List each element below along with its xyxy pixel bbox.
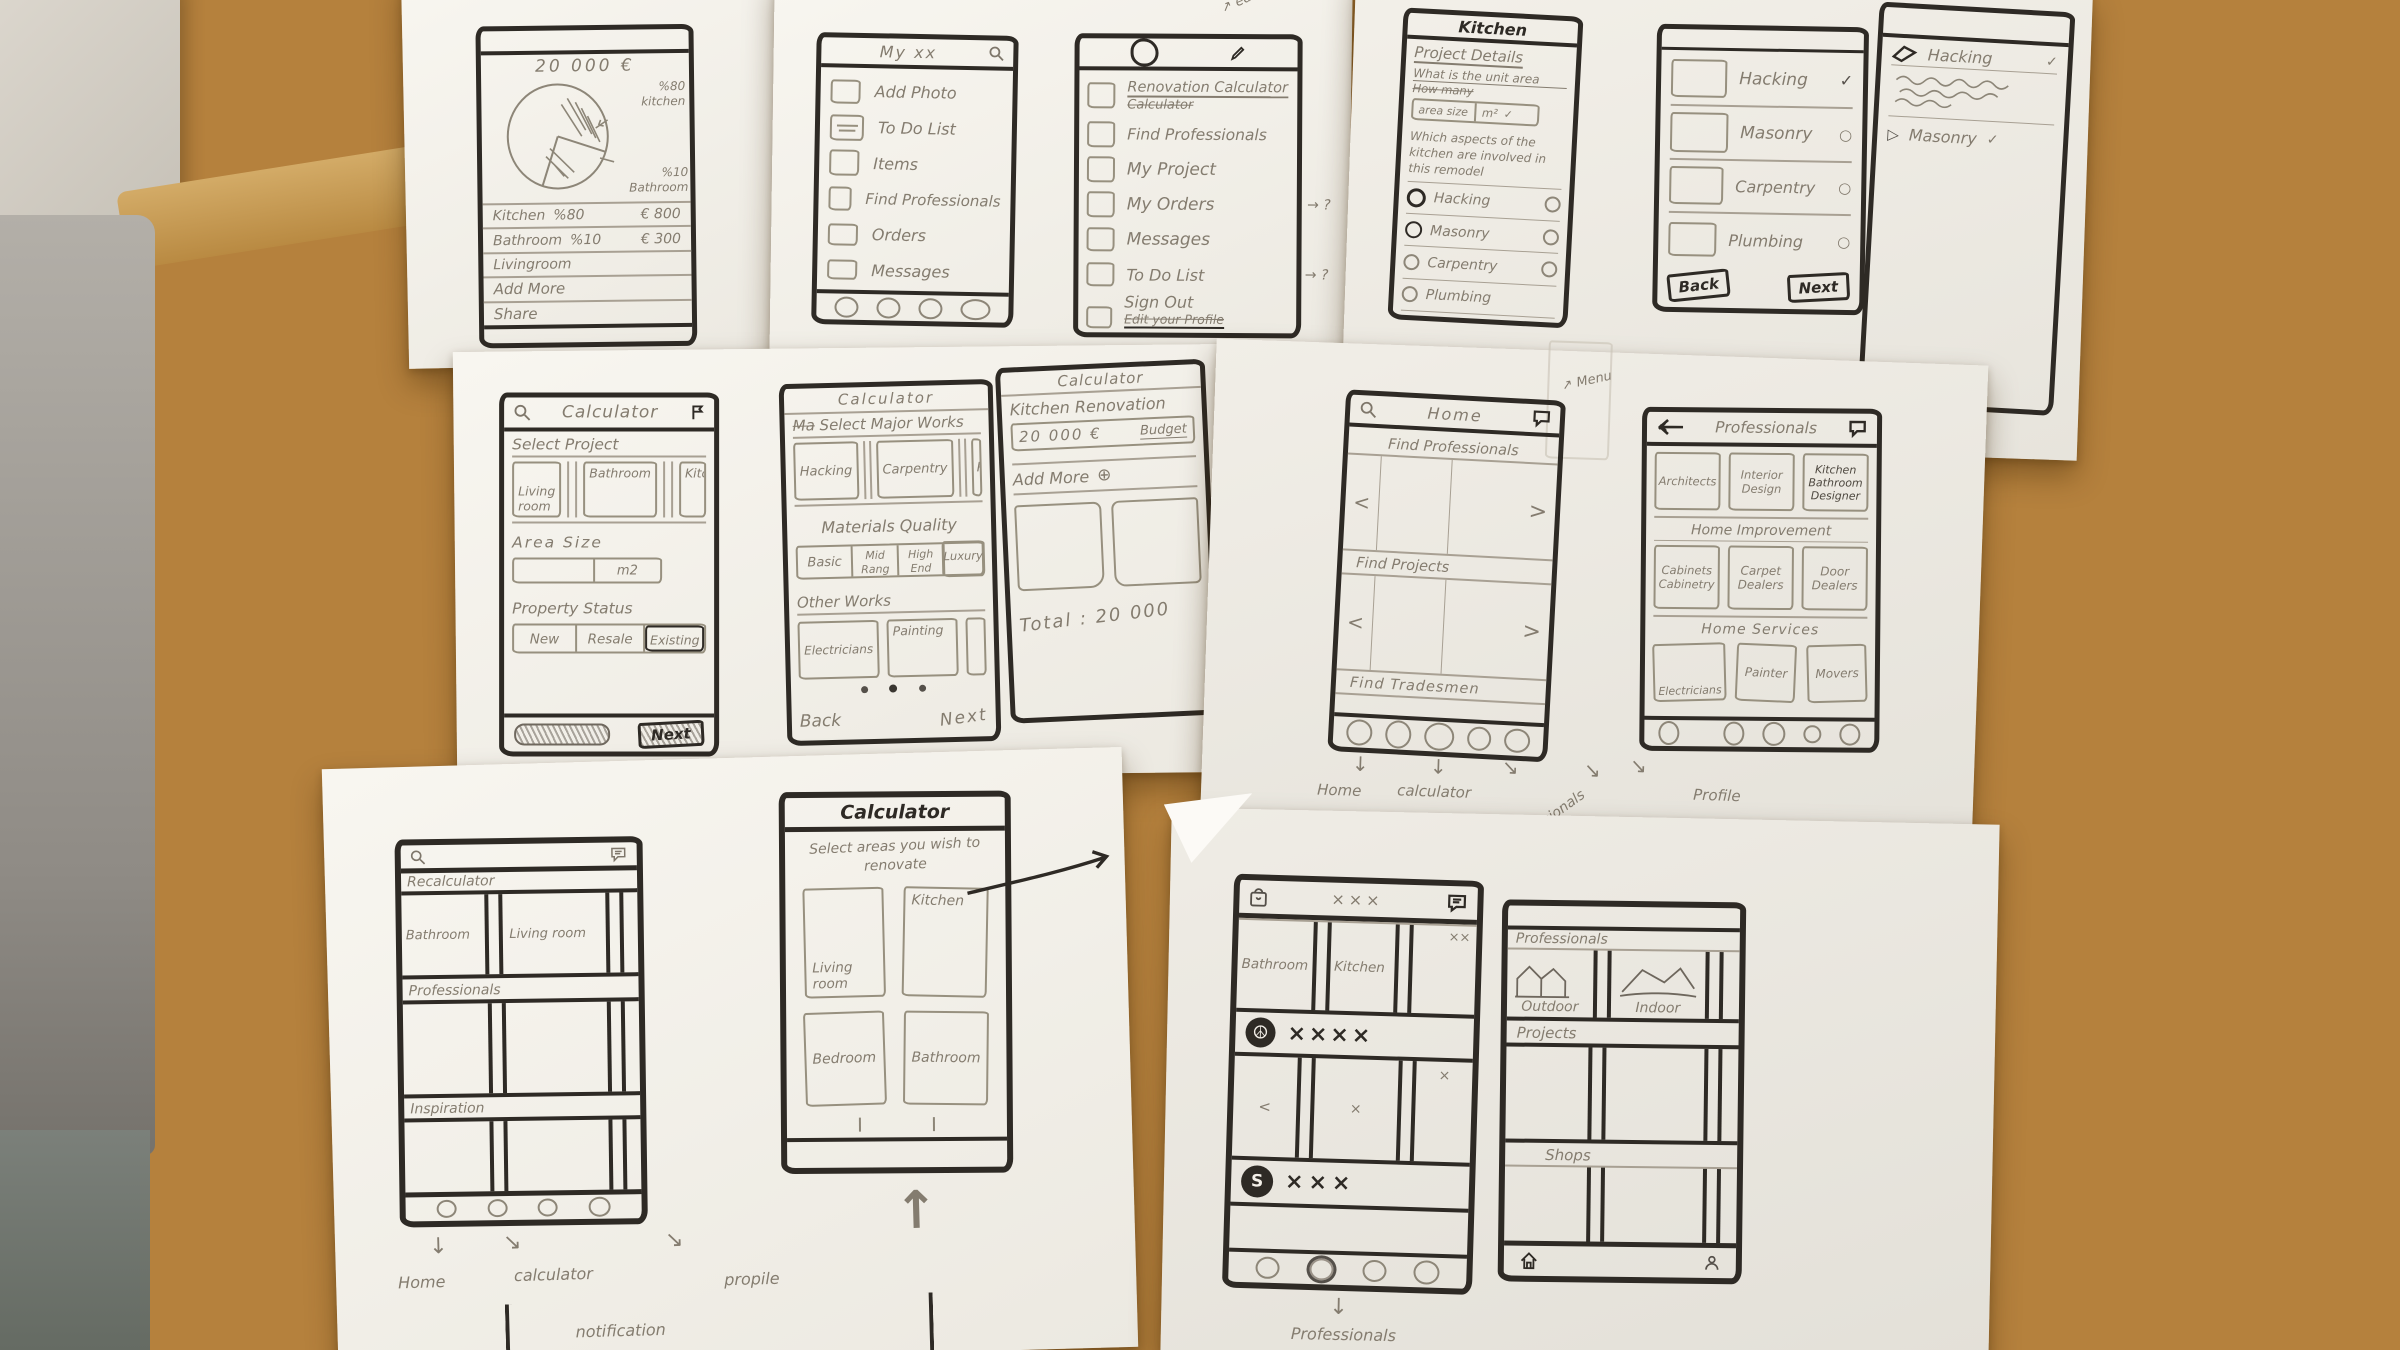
section-title: Property Status	[512, 599, 706, 617]
nav-arrow-icon: ↘	[1502, 755, 1520, 780]
phone-header: Professionals	[1647, 412, 1877, 448]
other-work-card: Electricians	[797, 620, 879, 680]
total-label: Total : 20 000	[1019, 595, 1204, 637]
grid-cell: Outdoor	[1507, 949, 1594, 1017]
category-card: Painter	[1735, 643, 1798, 704]
unit-label: m²	[1482, 106, 1499, 121]
nav-arrow-icon: ↓	[1352, 752, 1370, 777]
arrow-up-right-icon: ↗	[1219, 0, 1235, 16]
budget-row: Livingroom	[483, 250, 691, 277]
work-label: Hacking	[1739, 69, 1808, 90]
nav-dot	[589, 1197, 611, 1217]
nav-arrow-icon: ↓	[429, 1234, 448, 1260]
grid-cell: <	[1232, 1056, 1298, 1157]
card-label: Bathroom	[911, 1050, 980, 1067]
cell-label: Living room	[509, 925, 586, 941]
grid-cell	[1504, 1167, 1587, 1242]
radio-right-icon	[1543, 229, 1560, 246]
marketplace-feed-phone-sketch: ××× Bathroom Kitchen ×× ☮ ×××× <	[1222, 874, 1484, 1295]
nav-dot	[1723, 721, 1744, 745]
thumbnail-box	[1086, 263, 1114, 287]
section-title: Professionals	[402, 976, 638, 1004]
grid-cell-partial	[1720, 1170, 1737, 1244]
category-card: Kitchen Bathroom Designer	[1802, 453, 1869, 512]
add-more-label: Add More	[1012, 467, 1089, 489]
section-title: Home Improvement	[1654, 522, 1868, 543]
roof-sketch-icon	[1618, 962, 1698, 1001]
card-label: Carpet Dealers	[1730, 564, 1792, 593]
nav-dot	[1255, 1256, 1280, 1279]
row-amount: € 300	[641, 231, 681, 247]
renovation-menu-phone-sketch: Renovation Calculator Calculator Find Pr…	[1073, 33, 1303, 338]
arrow-up-right-icon: ↗	[1561, 377, 1575, 394]
screen-title: Calculator	[1057, 368, 1144, 390]
category-card: Movers	[1806, 644, 1868, 704]
accordion-item-collapsed: ▷ Masonry ✓	[1887, 115, 2054, 152]
phone-top-bar	[480, 29, 688, 56]
nav-arrow-icon: ↘	[1584, 758, 1602, 783]
back-arrow-scribble-icon	[1655, 417, 1685, 437]
menu-item: Add Photo	[830, 73, 1003, 112]
menu-item-label: Find Professionals	[1127, 125, 1267, 144]
nav-arrow-icon: ↓	[1329, 1295, 1348, 1320]
menu-item-label: Messages	[1127, 230, 1210, 250]
post-image-row: < × ×	[1232, 1056, 1473, 1167]
option-label: Hacking	[1433, 190, 1490, 209]
chat-icon	[1445, 891, 1470, 914]
check-mark: ✓	[1986, 131, 1999, 148]
materials-grade-segments: Basic Mid Rang High End Luxury	[796, 541, 985, 580]
category-cards-top: Architects Interior Design Kitchen Bathr…	[1654, 452, 1869, 520]
section-title: Shops	[1505, 1143, 1737, 1170]
carousel-card-divider	[1441, 580, 1517, 678]
post-author-row: S ×××	[1230, 1160, 1469, 1213]
radio-right-icon	[1541, 261, 1558, 278]
grid-cell	[1605, 1048, 1704, 1141]
feed-body: Recalculator Bathroom Living room Profes…	[401, 870, 642, 1221]
expand-triangle-icon: ▷	[1887, 125, 1900, 144]
nav-dot	[1504, 728, 1531, 753]
phone-top-bar	[1508, 905, 1740, 932]
grid-cell: Indoor	[1611, 951, 1706, 1020]
grid-cell-partial	[1723, 952, 1740, 1020]
section-title: Other Works	[797, 589, 985, 616]
work-card: Hacking	[793, 441, 859, 501]
section-title: Area Size	[512, 533, 706, 551]
input-label: area size	[1418, 103, 1468, 119]
grid-cell: Living room	[503, 893, 607, 974]
accordion-item-expanded: Hacking ✓	[1891, 43, 2058, 74]
person-icon	[1702, 1253, 1722, 1273]
thumbnail-box	[1670, 112, 1729, 153]
screen-title: Kitchen	[1458, 17, 1528, 40]
feed-grid-row	[403, 1001, 640, 1099]
desk-photo-of-wireframe-sketches: 20 000 € %80 kitchen	[0, 0, 2400, 1350]
checklist-row: Plumbing ○	[1668, 213, 1851, 268]
card-label: Kitchen	[911, 892, 964, 909]
struck-menu-item: Edit your Profile	[1124, 311, 1224, 329]
category-card: Cabinets Cabinetry	[1653, 545, 1720, 610]
screen-title: ×××	[1331, 890, 1384, 911]
thumbnail-box	[827, 259, 857, 280]
chevron-right-icon: >	[1520, 498, 1556, 525]
nav-dot	[834, 296, 858, 317]
screen-title: Calculator	[562, 402, 658, 422]
option-row: Plumbing	[1401, 277, 1557, 318]
menu-item: To Do List	[830, 109, 1003, 148]
category-grid-row: Outdoor Indoor	[1507, 949, 1740, 1023]
sheet-menus: ↗ edit profile My xx Add Photo To Do Lis…	[769, 0, 1353, 380]
ellipsis-mark	[859, 1118, 861, 1132]
more-indicator	[787, 1111, 1007, 1139]
struck-heading: Calculator	[1127, 97, 1288, 113]
card-label: Cabinets Cabinetry	[1656, 563, 1718, 592]
item-cards	[1014, 497, 1202, 591]
menu-heading-row: Renovation Calculator Calculator	[1087, 74, 1289, 117]
nav-arrow-icon: ↘	[1630, 753, 1648, 778]
nav-label-profile: Profile	[1693, 786, 1741, 806]
card-label: Door Dealers	[1804, 564, 1866, 593]
work-label: Hacking	[1927, 45, 1993, 68]
flag-icon	[1891, 44, 1918, 63]
screen-title: Calculator	[838, 388, 935, 408]
chat-icon	[609, 845, 629, 863]
card-label: Painting	[893, 622, 944, 638]
menu-item: Find Professionals	[1087, 116, 1289, 152]
shopping-bag-icon	[1247, 885, 1270, 910]
projects-carousel: < >	[1337, 574, 1552, 681]
flow-arrow-up-icon: ↑	[894, 1180, 939, 1241]
radio-icon	[1403, 254, 1420, 271]
budget-caption: Budget	[1140, 422, 1187, 440]
screen-subtitle: Select areas you wish to renovate	[798, 833, 991, 879]
chat-icon	[1531, 408, 1552, 429]
post-author-row: ☮ ××××	[1235, 1012, 1474, 1063]
menu-item-label: Add Photo	[874, 83, 956, 104]
area-size-input: area size m² ✓	[1411, 98, 1540, 127]
menu-item-label: To Do List	[878, 118, 956, 138]
section-title: Materials Quality	[795, 514, 983, 538]
professionals-annotation: Professionals	[1291, 1324, 1396, 1345]
works-checklist-phone-sketch: Hacking ✓ Masonry ○ Carpentry ○ Plumbing…	[1652, 24, 1869, 316]
sheet-budget: 20 000 € %80 kitchen	[401, 0, 784, 369]
sheet-home-professionals: ↗ Menu Home Find Professionals < > Find …	[1200, 339, 1989, 856]
sheet-calculator-steps: Calculator Select Project Living room Ba…	[453, 344, 1235, 780]
nav-arrow-icon: ↘	[665, 1227, 684, 1253]
nav-dot	[1363, 1260, 1388, 1283]
project-card: Bathroom	[583, 461, 657, 517]
radio-icon	[1401, 286, 1418, 303]
phone-bottom-nav	[816, 289, 1009, 323]
page-dot	[889, 684, 897, 692]
feed-grid-row	[404, 1120, 641, 1198]
back-link-sketch: Back	[800, 711, 842, 732]
thumbnail-box	[828, 186, 851, 210]
section-title: Select Major Works	[819, 413, 964, 435]
section-title: Projects	[1506, 1021, 1738, 1050]
nav-dot	[487, 1199, 507, 1217]
card-label: Living room	[812, 959, 878, 993]
category-grid-row	[1504, 1167, 1737, 1248]
menu-item: Items	[829, 145, 1002, 184]
row-amount: € 800	[641, 206, 681, 222]
feed-grid-row: Bathroom Living room	[401, 892, 638, 979]
card-label: Kitchen Bathroom Designer	[1804, 463, 1866, 503]
wizard-buttons: Back Next	[799, 697, 988, 736]
work-label: Masonry	[1740, 123, 1813, 144]
nav-dot	[1839, 723, 1860, 745]
nav-arrow-icon: ↓	[1430, 754, 1448, 779]
budget-total: 20 000 €	[481, 55, 689, 78]
phone-bottom-bar: Next	[504, 713, 714, 751]
floor	[0, 1130, 150, 1350]
phone-header: My xx	[821, 37, 1014, 71]
check-icon: ✓	[1503, 107, 1513, 120]
phone-header: Calculator	[785, 797, 1005, 833]
menu-item: To Do List→ ?	[1086, 257, 1288, 293]
budget-row: Share	[484, 298, 692, 325]
menu-item-label: My Project	[1127, 159, 1216, 179]
section-title: Home Services	[1653, 621, 1867, 639]
card-label: Plum	[977, 459, 983, 475]
budget-row: Bathroom %10 € 300	[483, 225, 691, 252]
radio-icon	[1405, 221, 1423, 239]
grid-cell	[1604, 1168, 1703, 1243]
phone-header: Calculator	[504, 397, 714, 431]
budget-rows: Kitchen %80 € 800 Bathroom %10 € 300 Liv…	[483, 201, 692, 326]
cell-label: Kitchen	[1334, 959, 1385, 976]
grid-divider	[487, 1003, 506, 1094]
grid-cell: Bathroom	[401, 894, 486, 975]
flow-bracket-sketch	[505, 1292, 936, 1350]
other-works-cards: Electricians Painting	[797, 617, 986, 680]
thumbnail-box	[1668, 222, 1717, 257]
grid-divider	[605, 892, 624, 972]
add-more-row: Add More ⊕	[1012, 455, 1197, 495]
nav-dot	[538, 1198, 558, 1216]
grid-cell: Kitchen	[1329, 923, 1396, 1013]
card-label: Electricians	[1658, 683, 1722, 698]
nav-label-profile: propile	[724, 1269, 780, 1290]
menu-item-label: Items	[873, 154, 918, 174]
nav-dots	[816, 293, 1008, 323]
budget-phone-sketch: 20 000 € %80 kitchen	[475, 24, 697, 349]
other-work-card: Painting	[886, 618, 958, 678]
form-body: Project Details What is the unit area Ho…	[1393, 39, 1577, 324]
card-label: Architects	[1659, 474, 1717, 489]
input-divider	[1474, 103, 1477, 121]
checklist-row: Carpentry ○	[1669, 159, 1852, 216]
cell-label: Indoor	[1635, 1000, 1680, 1017]
nav-dot	[960, 298, 990, 320]
partial-card	[965, 617, 986, 675]
card-label: Hacking	[800, 463, 853, 479]
step1-body: Select Project Living room Bathroom Kitc…	[504, 431, 714, 713]
menu-list: Add Photo To Do List Items Find Professi…	[817, 67, 1013, 293]
nav-label-home: Home	[398, 1272, 446, 1292]
marketplace-body: Bathroom Kitchen ×× ☮ ×××× < × ×	[1228, 918, 1477, 1289]
menu-item: My Orders→ ?	[1087, 187, 1289, 223]
thumbnail-box	[1669, 166, 1724, 205]
empty-strip	[1229, 1206, 1468, 1259]
thumbnail-box	[1671, 59, 1728, 98]
work-label: Masonry	[1908, 125, 1977, 148]
chair-side	[0, 215, 155, 1155]
question-text: Which aspects of the kitchen are involve…	[1408, 128, 1564, 185]
houses-sketch-icon	[1513, 959, 1587, 1000]
item-card	[1111, 497, 1202, 587]
options-list: Hacking Masonry Carpentry	[1401, 180, 1562, 318]
next-button-sketch: Next	[1787, 272, 1850, 303]
work-card: Plum	[971, 438, 982, 496]
row-label: Kitchen	[493, 208, 546, 225]
category-card: Interior Design	[1728, 453, 1795, 512]
segment-label-selected: Existing	[646, 625, 705, 651]
avatar-icon: ☮	[1245, 1017, 1276, 1048]
radio-mark: ○	[1838, 179, 1851, 197]
wizard-buttons: Back Next	[1667, 265, 1850, 308]
chevron-left-icon: <	[1338, 609, 1372, 635]
ellipsis-mark	[933, 1117, 935, 1131]
cell-label: Outdoor	[1521, 999, 1578, 1016]
professionals-carousel: < >	[1343, 455, 1558, 562]
cell-label: Bathroom	[1241, 956, 1308, 974]
nav-dot	[876, 297, 900, 318]
radio-mark: ○	[1839, 126, 1852, 144]
menu-item-label: Messages	[871, 261, 950, 282]
grid-cell	[404, 1122, 490, 1193]
scribbled-back-pill	[514, 723, 610, 745]
row-pct: %80	[553, 207, 584, 223]
thumbnail-box	[1086, 306, 1112, 328]
chevron-left-icon: <	[1345, 489, 1379, 515]
menu-item: Orders	[828, 216, 1001, 255]
menu-item-label: My Orders	[1127, 195, 1215, 215]
card-label: Carpentry	[882, 461, 947, 478]
menu-list: Renovation Calculator Calculator Find Pr…	[1078, 70, 1297, 333]
card-divider	[863, 441, 873, 499]
menu-heading: Renovation Calculator	[1127, 79, 1288, 98]
sheet-feed-categories: ××× Bathroom Kitchen ×× ☮ ×××× <	[1160, 807, 1999, 1350]
radio-icon	[1406, 188, 1426, 208]
question-annotation: → ?	[1305, 268, 1329, 284]
menu-item: Sign Out Edit your Profile	[1086, 292, 1288, 329]
work-card: Carpentry	[876, 439, 954, 499]
grid-cell: Bathroom	[1236, 920, 1313, 1010]
menu-item: Messages	[1087, 222, 1289, 258]
sheet-feed-calculator: Recalculator Bathroom Living room Profes…	[322, 747, 1138, 1350]
chat-icon	[1847, 419, 1869, 439]
phone-bottom-nav	[1504, 1245, 1736, 1278]
calc-step2-phone-sketch: Calculator Ma Select Major Works Hacking…	[779, 379, 1002, 746]
row-pct: %10	[570, 232, 601, 248]
feed-grid-phone-sketch: Recalculator Bathroom Living room Profes…	[394, 836, 647, 1227]
grid-cell: ××	[1411, 925, 1476, 1015]
nav-label-home: Home	[1317, 780, 1362, 800]
nav-dot	[1346, 719, 1373, 746]
struck-word: Ma	[792, 416, 815, 435]
property-status-segments: New Resale Existing	[512, 623, 706, 653]
carousel-card-divider	[1447, 460, 1523, 558]
nav-dots	[1228, 1252, 1467, 1289]
unit-label: m2	[595, 563, 660, 578]
grid-divider	[489, 1121, 508, 1191]
pro-body: Architects Interior Design Kitchen Bathr…	[1645, 446, 1877, 718]
screen-title: Home	[1427, 403, 1483, 425]
nav-dot	[1658, 721, 1679, 745]
category-card: Door Dealers	[1801, 546, 1868, 611]
section-title: Inspiration	[404, 1096, 640, 1123]
selected-check-mark: ✓	[1840, 71, 1854, 90]
calc-summary-phone-sketch: Calculator Kitchen Renovation 20 000 € B…	[995, 359, 1221, 724]
thumbnail-box	[1087, 82, 1115, 108]
menu-item-label: Orders	[872, 225, 926, 245]
nav-label-calculator: calculator	[514, 1264, 593, 1285]
screen-title: Professionals	[1715, 418, 1817, 437]
checklist-row: Hacking ✓	[1671, 52, 1854, 109]
checklist-row: Masonry ○	[1670, 106, 1853, 163]
grid-cell	[505, 1002, 608, 1094]
phone-bottom-bar	[484, 323, 692, 344]
option-label: Plumbing	[1425, 287, 1491, 306]
grid-divider	[1702, 1169, 1721, 1243]
phone-bottom-bar	[787, 1137, 1007, 1169]
categories-phone-sketch: Professionals Outdoor Indoor Projects	[1498, 899, 1747, 1284]
nav-dot	[1424, 722, 1455, 752]
page-dot	[861, 686, 868, 693]
improvement-cards: Cabinets Cabinetry Carpet Dealers Door D…	[1653, 545, 1868, 619]
area-card: Bedroom	[803, 1010, 887, 1107]
project-card: Living room	[512, 461, 561, 517]
nav-label-calculator: calculator	[1397, 781, 1472, 802]
thumbnail-box	[829, 149, 859, 176]
cell-label: ××	[1448, 930, 1470, 946]
grid-cell-partial	[625, 1001, 640, 1092]
option-label: Masonry	[1430, 223, 1490, 242]
input-empty-cell	[514, 559, 595, 581]
nav-dots	[1333, 717, 1544, 756]
works-cards: Hacking Carpentry Plum	[793, 438, 983, 507]
card-label: Painter	[1745, 665, 1788, 681]
next-link-sketch: Next	[939, 705, 989, 731]
card-label: Living room	[518, 483, 555, 513]
grid-divider	[1587, 1048, 1606, 1140]
option-label: Carpentry	[1427, 255, 1498, 275]
menu-item-label: To Do List	[1126, 265, 1204, 284]
budget-input: 20 000 € Budget	[1010, 415, 1195, 451]
kitchen-form-phone-sketch: Kitchen Project Details What is the unit…	[1387, 7, 1583, 328]
row-label: Bathroom	[493, 232, 562, 249]
grid-cell: ×	[1313, 1058, 1400, 1160]
service-cards: Electricians Painter Movers	[1653, 643, 1867, 703]
work-label: Carpentry	[1735, 177, 1815, 197]
next-button-sketch: Next	[638, 720, 705, 749]
row-label: Share	[494, 305, 538, 324]
nav-dot	[1467, 726, 1492, 751]
area-card: Living room	[802, 887, 886, 999]
pencil-edit-icon	[1229, 44, 1247, 62]
edit-profile-annotation: ↗ edit profile	[1219, 0, 1304, 16]
page-dot	[918, 684, 925, 691]
search-icon	[987, 44, 1005, 62]
phone-header	[401, 842, 637, 873]
category-card: Carpet Dealers	[1727, 546, 1794, 611]
segment-label: Luxury	[941, 540, 985, 577]
project-cards: Living room Bathroom Kitchen	[512, 461, 706, 523]
list-thumbnail-box	[830, 114, 864, 141]
grid-divider	[485, 894, 504, 974]
area-card: Bathroom	[903, 1010, 989, 1105]
